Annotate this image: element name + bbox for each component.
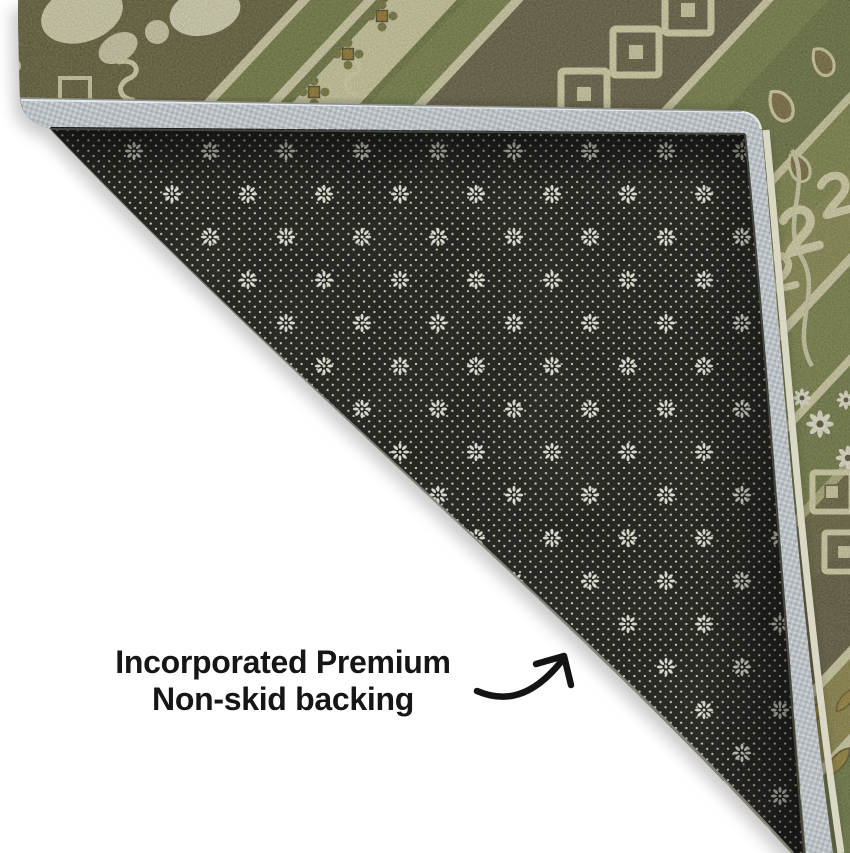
caption-line-2: Non-skid backing [115, 681, 450, 718]
rug-photo [0, 0, 850, 853]
product-image-stage: Incorporated Premium Non-skid backing [0, 0, 850, 853]
caption: Incorporated Premium Non-skid backing [115, 644, 450, 718]
caption-line-1: Incorporated Premium [115, 644, 450, 681]
